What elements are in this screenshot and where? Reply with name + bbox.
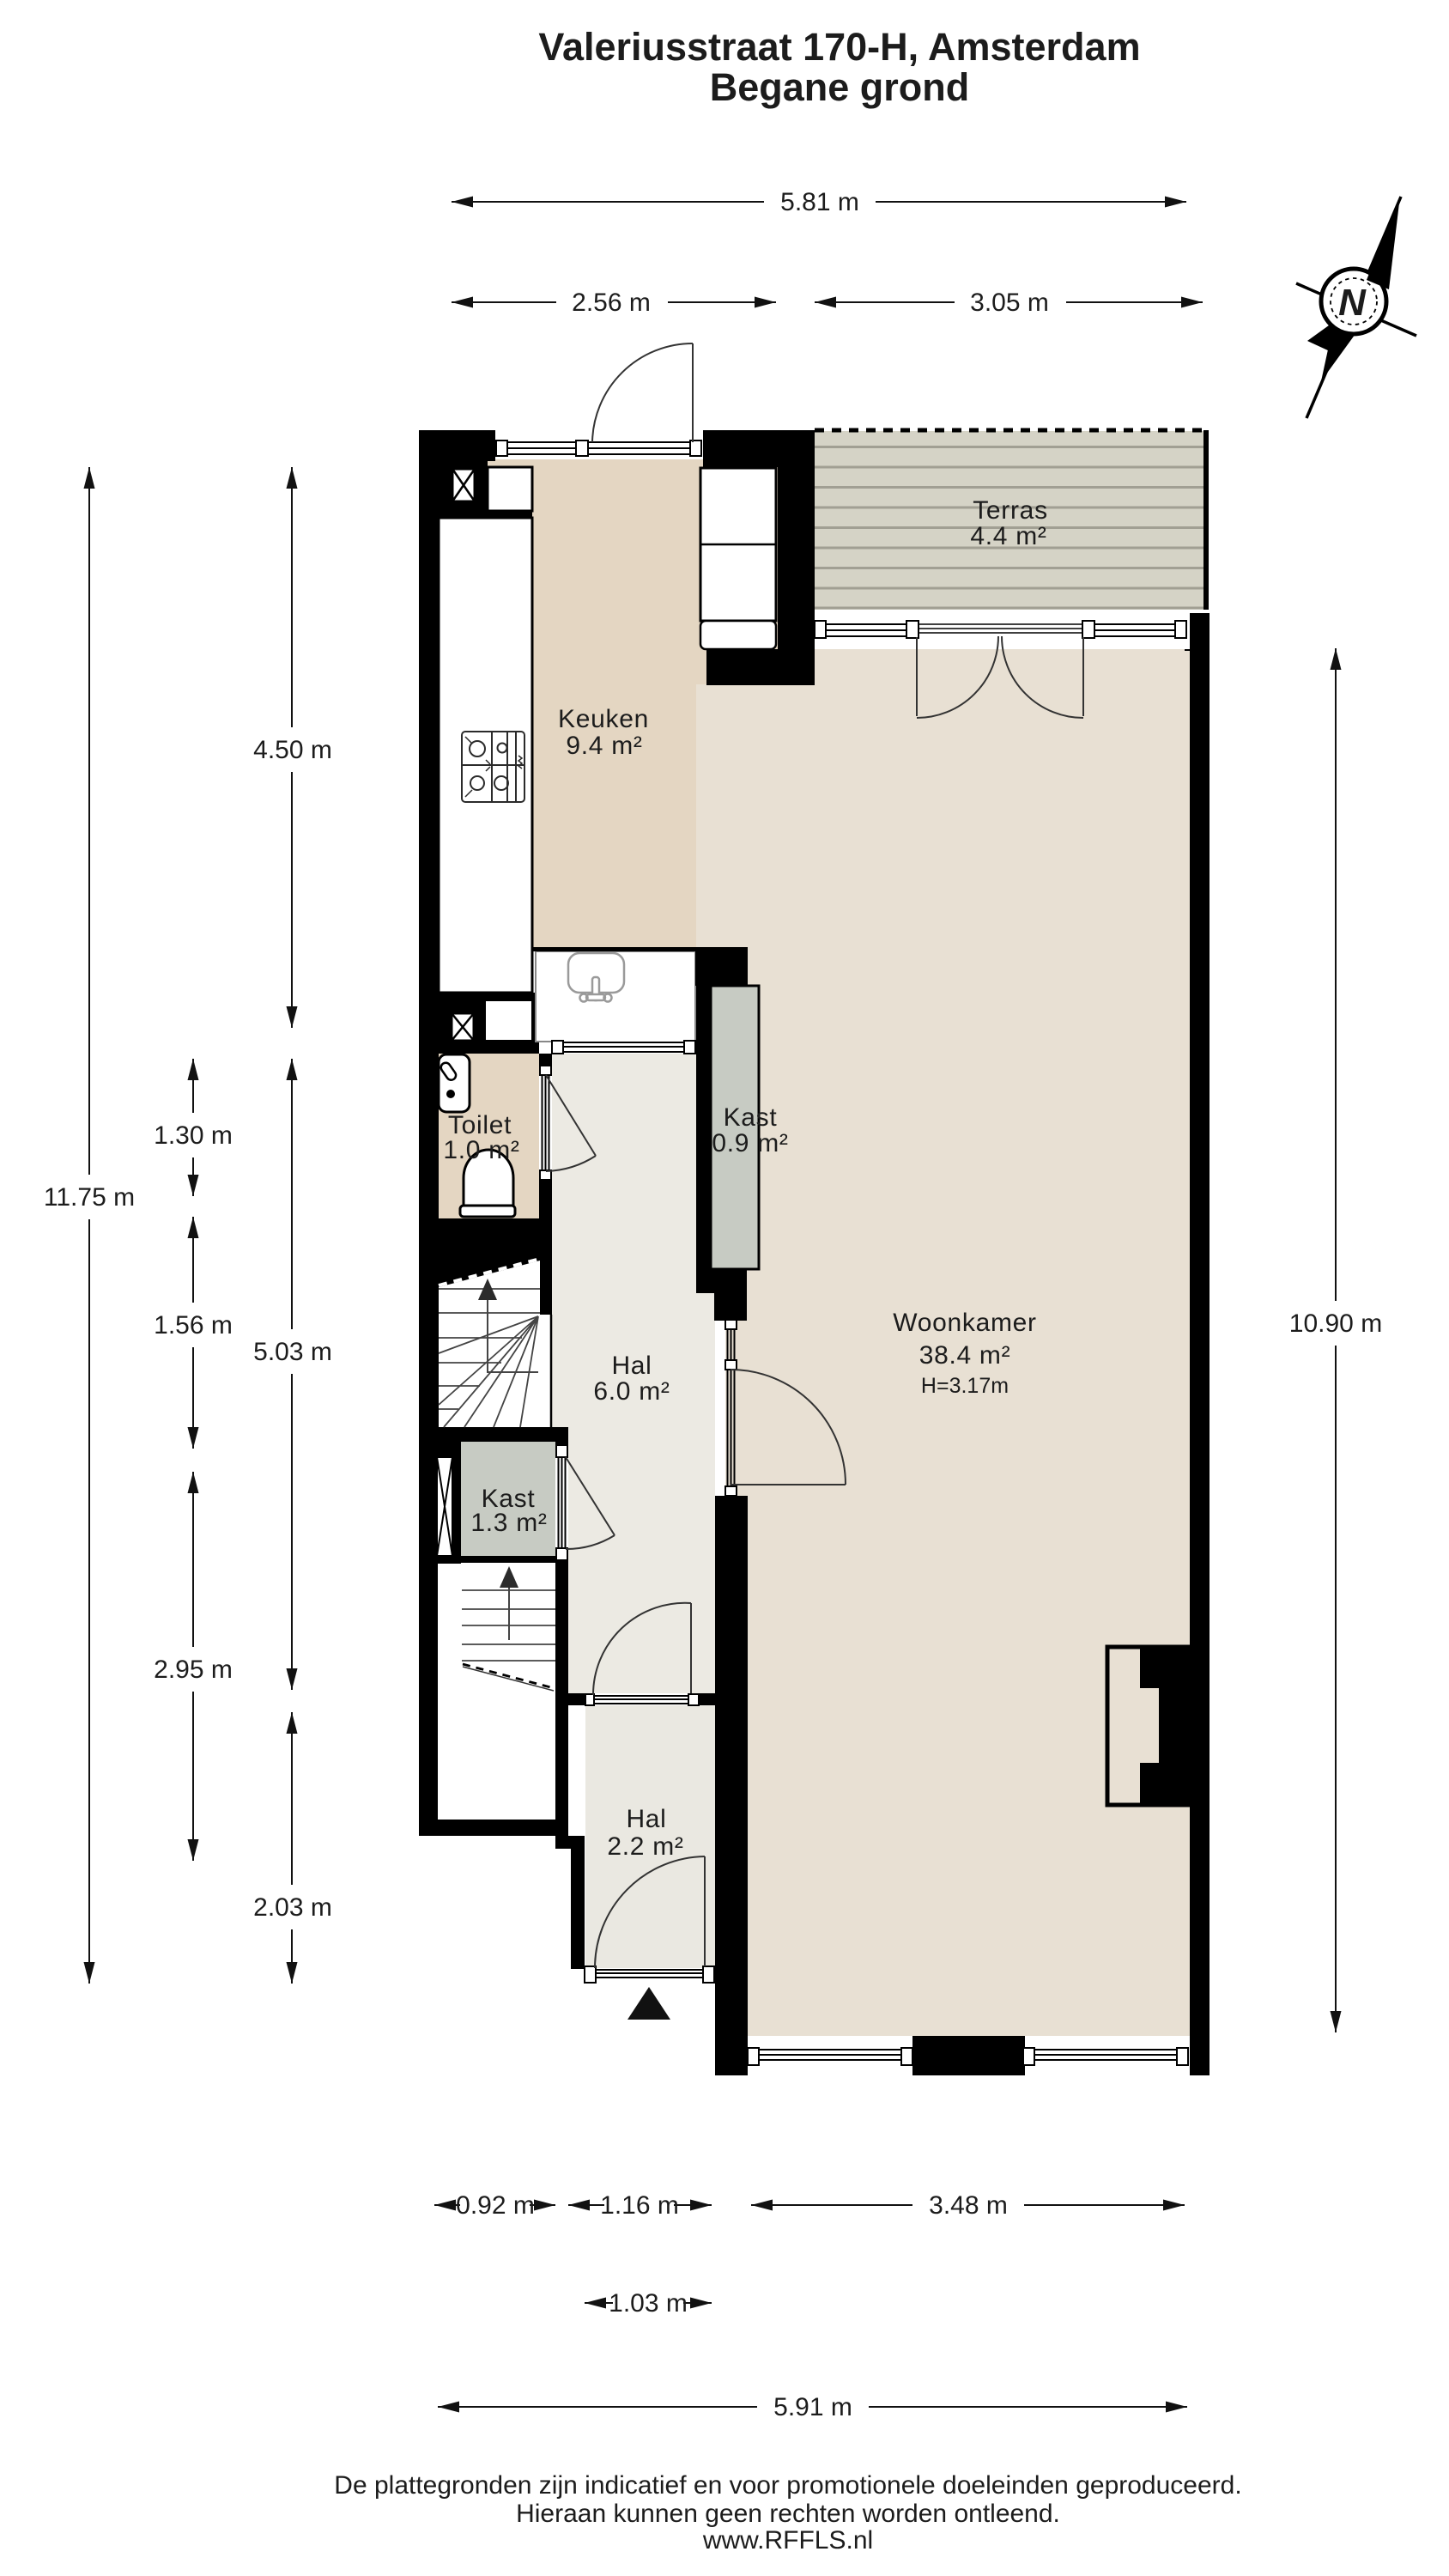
svg-text:38.4 m²: 38.4 m² <box>919 1341 1011 1370</box>
svg-text:Hal: Hal <box>626 1805 666 1833</box>
svg-text:9.4 m²: 9.4 m² <box>566 732 642 760</box>
svg-text:0.92 m: 0.92 m <box>456 2191 535 2220</box>
svg-text:Hal: Hal <box>611 1352 652 1380</box>
svg-text:N: N <box>1338 282 1367 324</box>
svg-text:2.03 m: 2.03 m <box>253 1893 332 1922</box>
svg-text:Hieraan kunnen geen rechten wo: Hieraan kunnen geen rechten worden ontle… <box>516 2500 1060 2528</box>
svg-text:Keuken: Keuken <box>558 705 649 733</box>
svg-text:Valeriusstraat 170-H, Amsterda: Valeriusstraat 170-H, Amsterdam <box>538 25 1140 69</box>
svg-text:5.91 m: 5.91 m <box>773 2393 852 2421</box>
svg-text:3.48 m: 3.48 m <box>929 2191 1008 2220</box>
svg-text:10.90 m: 10.90 m <box>1289 1309 1382 1338</box>
svg-text:11.75 m: 11.75 m <box>44 1183 135 1212</box>
svg-text:2.95 m: 2.95 m <box>154 1656 233 1684</box>
svg-text:1.56 m: 1.56 m <box>154 1311 233 1340</box>
svg-text:3.05 m: 3.05 m <box>970 289 1049 317</box>
svg-text:2.2 m²: 2.2 m² <box>607 1832 683 1861</box>
svg-text:0.9 m²: 0.9 m² <box>712 1129 788 1157</box>
svg-text:H=3.17m: H=3.17m <box>921 1374 1009 1398</box>
svg-text:5.81 m: 5.81 m <box>780 188 859 216</box>
svg-text:1.03 m: 1.03 m <box>609 2289 688 2318</box>
svg-text:1.30 m: 1.30 m <box>154 1121 233 1150</box>
svg-text:5.03 m: 5.03 m <box>253 1338 332 1366</box>
svg-text:6.0 m²: 6.0 m² <box>593 1377 670 1406</box>
svg-text:www.RFFLS.nl: www.RFFLS.nl <box>702 2526 873 2555</box>
svg-text:Kast: Kast <box>724 1103 778 1132</box>
svg-text:Begane grond: Begane grond <box>710 65 970 109</box>
svg-text:1.16 m: 1.16 m <box>600 2191 679 2220</box>
svg-text:4.50 m: 4.50 m <box>253 736 332 764</box>
svg-text:4.4 m²: 4.4 m² <box>970 522 1046 550</box>
svg-text:2.56 m: 2.56 m <box>572 289 651 317</box>
svg-text:De plattegronden zijn indicati: De plattegronden zijn indicatief en voor… <box>334 2471 1241 2500</box>
svg-text:1.3 m²: 1.3 m² <box>470 1509 547 1537</box>
svg-text:Terras: Terras <box>973 496 1048 525</box>
svg-text:1.0 m²: 1.0 m² <box>443 1136 519 1164</box>
svg-text:Woonkamer: Woonkamer <box>893 1309 1036 1337</box>
